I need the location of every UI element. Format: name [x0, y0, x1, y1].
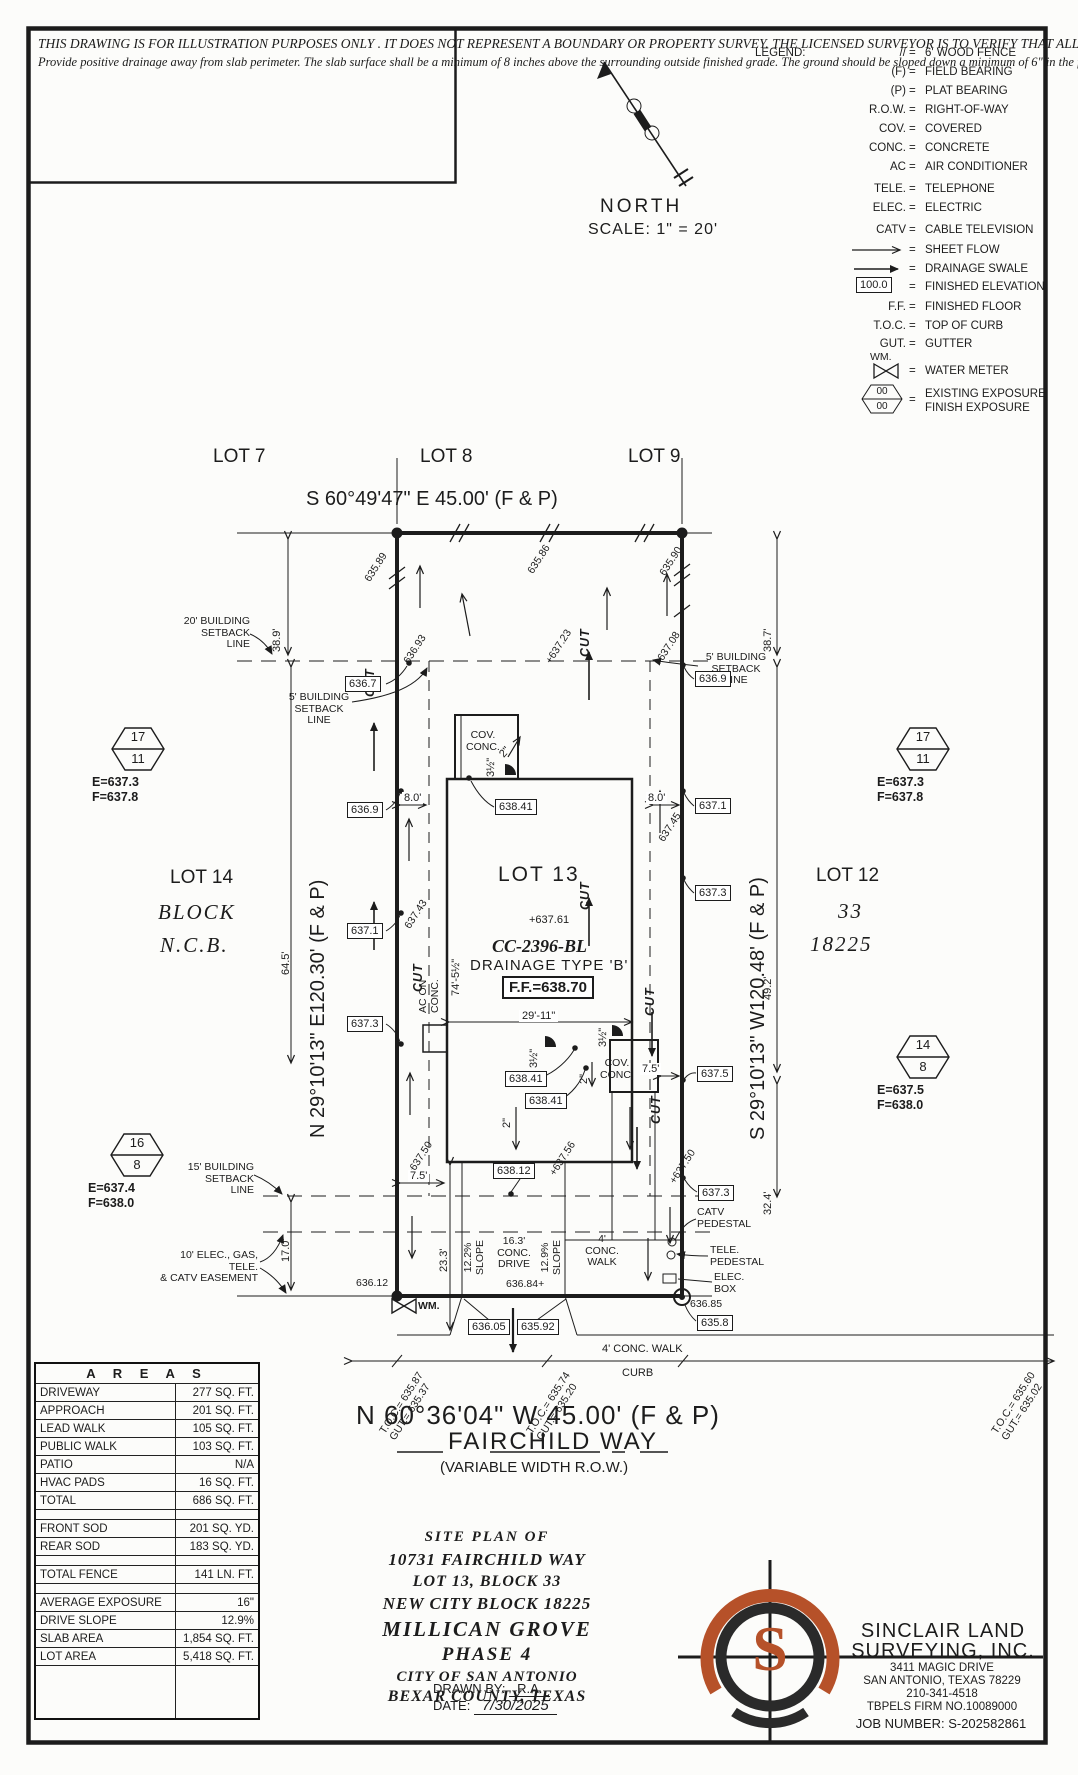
areas-label: HVAC PADS: [35, 1474, 176, 1492]
street-row-note: (VARIABLE WIDTH R.O.W.): [440, 1460, 628, 1476]
legend-sym: (P): [812, 85, 906, 97]
firm-name-2: SURVEYING, INC.: [843, 1640, 1043, 1662]
legend-eq: =: [909, 85, 916, 97]
areas-table: A R E A S DRIVEWAY277 SQ. FT. APPROACH20…: [34, 1362, 260, 1720]
legend-eq: =: [909, 394, 916, 406]
easement-label: 10' ELEC., GAS, TELE. & CATV EASEMENT: [150, 1250, 258, 1285]
lot-9-label: LOT 9: [628, 447, 680, 467]
elev-box: 637.3: [347, 1016, 383, 1032]
catv-pedestal-icon: [668, 1238, 676, 1246]
exposure-bottom: 8: [119, 1158, 155, 1172]
areas-value: 1,854 SQ. FT.: [176, 1630, 260, 1648]
areas-value: 201 SQ. FT.: [176, 1402, 260, 1420]
cut-label: CUT: [643, 987, 657, 1016]
areas-value: 5,418 SQ. FT.: [176, 1648, 260, 1666]
firm-address-2: SAN ANTONIO, TEXAS 78229: [840, 1675, 1044, 1688]
lot-7-label: LOT 7: [213, 447, 265, 467]
lot-12-label: LOT 12: [816, 866, 879, 886]
elev-box: 637.1: [347, 923, 383, 939]
areas-value: 105 SQ. FT.: [176, 1420, 260, 1438]
legend-desc: CONCRETE: [925, 142, 990, 154]
catv-pedestal-label: CATV PEDESTAL: [697, 1207, 751, 1230]
title-line: 10731 FAIRCHILD WAY: [337, 1550, 637, 1570]
legend-desc: COVERED: [925, 123, 982, 135]
elev-box: 636.9: [695, 671, 731, 687]
setback-15-label: 15' BUILDING SETBACK LINE: [182, 1162, 254, 1197]
legend-eq: =: [909, 281, 916, 293]
bearing-north-line: S 60°49'47" E 45.00' (F & P): [306, 488, 558, 510]
areas-value: 141 LN. FT.: [176, 1566, 260, 1584]
areas-value: [176, 1584, 260, 1594]
legend-eq: =: [909, 244, 916, 256]
cut-label: CUT: [578, 881, 592, 910]
tele-pedestal-label: TELE. PEDESTAL: [710, 1245, 764, 1268]
logo-letter: S: [742, 1617, 798, 1681]
exposure-e: E=637.3: [92, 775, 139, 789]
areas-value: 16": [176, 1594, 260, 1612]
cov-conc-top-label: COV. CONC.: [466, 730, 500, 753]
spot-elev: 636.84+: [506, 1279, 544, 1291]
legend-desc: FINISH EXPOSURE: [925, 402, 1030, 414]
legend-eq: =: [909, 183, 916, 195]
site-plan-sheet: THIS DRAWING IS FOR ILLUSTRATION PURPOSE…: [0, 0, 1078, 1775]
areas-title: A R E A S: [35, 1363, 259, 1384]
firm-address-1: 3411 MAGIC DRIVE: [840, 1662, 1044, 1675]
exposure-bottom: 8: [905, 1060, 941, 1074]
drawn-by-value: R.A.: [509, 1681, 550, 1697]
areas-label: [35, 1584, 176, 1594]
dim-8-0-left: 8.0': [402, 792, 423, 804]
legend-desc: EXISTING EXPOSURE: [925, 388, 1046, 400]
north-arrow-icon: [597, 62, 693, 186]
bearing-east-line: S 29°10'13" W120.48' (F & P): [747, 877, 769, 1140]
legend-desc: FINISHED FLOOR: [925, 301, 1021, 313]
legend-desc: ELECTRIC: [925, 202, 982, 214]
dim-64-5: 64.5': [280, 951, 292, 975]
dim-2in: 2": [501, 1118, 513, 1128]
dim-38-7: 38.7': [762, 628, 774, 652]
elev-box: 635.92: [517, 1319, 559, 1335]
legend-sym: (F): [812, 66, 906, 78]
legend-eq: =: [909, 142, 916, 154]
elev-box: 637.3: [695, 885, 731, 901]
legend-eq: =: [909, 338, 916, 350]
exposure-top: 14: [905, 1038, 941, 1052]
elev-box: 637.1: [695, 798, 731, 814]
areas-label: [35, 1556, 176, 1566]
wm-label: WM.: [418, 1301, 440, 1313]
drawn-by-label: DRAWN BY:: [433, 1681, 505, 1696]
exposure-top: 17: [905, 730, 941, 744]
tele-pedestal-icon: [667, 1251, 675, 1259]
elev-box: 636.05: [468, 1319, 510, 1335]
areas-label: [35, 1666, 176, 1720]
exposure-f: F=638.0: [88, 1196, 134, 1210]
title-line: NEW CITY BLOCK 18225: [337, 1594, 637, 1614]
scale-label: SCALE: 1" = 20': [588, 221, 718, 238]
ncb-18225-label: 18225: [810, 933, 873, 955]
legend-sym: TELE.: [812, 183, 906, 195]
ncb-label: N.C.B.: [160, 934, 229, 956]
date-row: DATE: 7/30/2025: [433, 1699, 557, 1713]
legend-desc: WATER METER: [925, 365, 1009, 377]
legend-desc: PLAT BEARING: [925, 85, 1008, 97]
areas-label: LOT AREA: [35, 1648, 176, 1666]
elev-box: 637.5: [697, 1066, 733, 1082]
areas-value: [176, 1666, 260, 1720]
spot-elev: 636.85: [690, 1299, 722, 1311]
spot-elev: 636.12: [356, 1278, 388, 1290]
legend-eq: =: [909, 320, 916, 332]
conc-walk-plan-label: 4' CONC. WALK: [580, 1234, 624, 1269]
dim-3half: 3½": [485, 758, 497, 777]
elev-box: 637.3: [698, 1185, 734, 1201]
house-cc-number: CC-2396-BL: [492, 936, 587, 957]
exposure-e: E=637.4: [88, 1181, 135, 1195]
dim-38-9: 38.9': [271, 628, 283, 652]
areas-value: 183 SQ. YD.: [176, 1538, 260, 1556]
lot-14-label: LOT 14: [170, 868, 233, 888]
exposure-bottom: 11: [905, 752, 941, 766]
water-meter-icon: [392, 1299, 416, 1313]
block-33-label: 33: [838, 900, 863, 922]
title-line: PHASE 4: [337, 1644, 637, 1666]
elev-box: 636.7: [345, 676, 381, 692]
areas-value: 103 SQ. FT.: [176, 1438, 260, 1456]
firm-name-1: SINCLAIR LAND: [843, 1620, 1043, 1642]
legend-desc: CABLE TELEVISION: [925, 224, 1033, 236]
setback-5-left-label: 5' BUILDING SETBACK LINE: [283, 692, 355, 727]
legend-eq: =: [909, 161, 916, 173]
exposure-f: F=637.8: [877, 790, 923, 804]
exposure-top: 17: [120, 730, 156, 744]
bearing-south-line: N 60°36'04" W 45.00' (F & P): [356, 1402, 720, 1429]
date-label: DATE:: [433, 1698, 470, 1713]
exposure-e: E=637.3: [877, 775, 924, 789]
north-label: NORTH: [600, 197, 682, 217]
legend-desc: GUTTER: [925, 338, 972, 350]
dim-3half: 3½": [597, 1028, 609, 1047]
legend-eq: =: [909, 301, 916, 313]
firm-phone: 210-341-4518: [840, 1688, 1044, 1701]
areas-label: PATIO: [35, 1456, 176, 1474]
slope-right-label: 12.9% SLOPE: [540, 1240, 563, 1275]
drawn-by-row: DRAWN BY: R.A.: [433, 1682, 550, 1696]
exposure-bottom: 11: [120, 752, 156, 766]
legend-sym: AC: [812, 161, 906, 173]
legend-title: LEGEND:: [755, 47, 806, 60]
elev-box: 638.12: [493, 1163, 535, 1179]
areas-label: TOTAL FENCE: [35, 1566, 176, 1584]
elev-box: 636.9: [347, 802, 383, 818]
legend-eq: =: [909, 224, 916, 236]
legend-desc: TELEPHONE: [925, 183, 995, 195]
legend-exposure-top: 00: [868, 386, 896, 397]
title-line: SITE PLAN OF: [337, 1529, 637, 1546]
areas-label: PUBLIC WALK: [35, 1438, 176, 1456]
areas-value: N/A: [176, 1456, 260, 1474]
areas-label: SLAB AREA: [35, 1630, 176, 1648]
curb-label: CURB: [622, 1367, 653, 1379]
legend-sym: F.F.: [812, 301, 906, 313]
conc-drive-label: 16.3' CONC. DRIVE: [492, 1236, 536, 1271]
dim-8-0-right: 8.0': [646, 792, 667, 804]
cut-label: CUT: [578, 628, 592, 657]
block-label: BLOCK: [158, 901, 236, 923]
legend-desc: FINISHED ELEVATION: [925, 281, 1045, 293]
drainage-type-label: DRAINAGE TYPE 'B': [470, 958, 628, 974]
elec-box-icon: [663, 1274, 676, 1283]
legend-sym: //: [812, 47, 906, 59]
setback-20-label: 20' BUILDING SETBACK LINE: [178, 616, 250, 651]
dim-17-0: 17.0': [280, 1238, 292, 1262]
legend-desc: RIGHT-OF-WAY: [925, 104, 1009, 116]
drainage-note: Provide positive drainage away from slab…: [38, 55, 442, 70]
legend-eq: =: [909, 66, 916, 78]
areas-value: 686 SQ. FT.: [176, 1492, 260, 1510]
dim-2in: 2": [578, 1074, 590, 1084]
exposure-top: 16: [119, 1136, 155, 1150]
dim-74-5: 74'-5½": [450, 959, 462, 996]
date-value: 7/30/2025: [474, 1697, 557, 1715]
disclaimer-caps: THIS DRAWING IS FOR ILLUSTRATION PURPOSE…: [38, 36, 442, 52]
elev-box: 635.8: [697, 1315, 733, 1331]
street-name: FAIRCHILD WAY: [448, 1429, 658, 1454]
title-line: MILLICAN GROVE: [337, 1617, 637, 1642]
areas-label: FRONT SOD: [35, 1520, 176, 1538]
legend-sym: COV.: [812, 123, 906, 135]
finished-floor-value: F.F.=638.70: [502, 976, 594, 999]
cut-label: CUT: [649, 1095, 663, 1124]
areas-value: 277 SQ. FT.: [176, 1384, 260, 1402]
legend-desc: TOP OF CURB: [925, 320, 1003, 332]
exposure-e: E=637.5: [877, 1083, 924, 1097]
legend-eq: =: [909, 365, 916, 377]
dim-32-4: 32.4': [762, 1191, 774, 1215]
legend-finished-elevation-sym: 100.0: [856, 277, 892, 293]
legend-eq: =: [909, 47, 916, 59]
areas-value: [176, 1556, 260, 1566]
legend-exposure-bottom: 00: [868, 401, 896, 412]
areas-value: 12.9%: [176, 1612, 260, 1630]
bearing-west-line: N 29°10'13" E120.30' (F & P): [307, 880, 329, 1138]
dim-3half: 3½": [528, 1049, 540, 1068]
house-spot-elev: +637.61: [529, 914, 569, 926]
lot-8-label: LOT 8: [420, 447, 472, 467]
dim-29-11: 29'-11": [519, 1010, 558, 1022]
elev-box: 638.41: [505, 1071, 547, 1087]
legend-desc: FIELD BEARING: [925, 66, 1013, 78]
legend-desc: SHEET FLOW: [925, 244, 1000, 256]
areas-label: AVERAGE EXPOSURE: [35, 1594, 176, 1612]
areas-label: REAR SOD: [35, 1538, 176, 1556]
firm-job-number: JOB NUMBER: S-202582861: [836, 1717, 1046, 1731]
legend-desc: AIR CONDITIONER: [925, 161, 1028, 173]
areas-label: DRIVE SLOPE: [35, 1612, 176, 1630]
areas-value: [176, 1510, 260, 1520]
dim-23-3: 23.3': [438, 1248, 450, 1272]
areas-value: 201 SQ. YD.: [176, 1520, 260, 1538]
dim-7-5-left: 7.5': [408, 1170, 429, 1182]
areas-label: APPROACH: [35, 1402, 176, 1420]
areas-value: 16 SQ. FT.: [176, 1474, 260, 1492]
legend-sym: CONC.: [812, 142, 906, 154]
legend-eq: =: [909, 104, 916, 116]
areas-label: TOTAL: [35, 1492, 176, 1510]
exposure-f: F=638.0: [877, 1098, 923, 1112]
title-block: SITE PLAN OF 10731 FAIRCHILD WAY LOT 13,…: [337, 1529, 637, 1706]
legend-sym: ELEC.: [812, 202, 906, 214]
areas-label: DRIVEWAY: [35, 1384, 176, 1402]
firm-tbpels: TBPELS FIRM NO.10089000: [840, 1701, 1044, 1714]
title-line: LOT 13, BLOCK 33: [337, 1573, 637, 1591]
legend-sym: GUT.: [812, 338, 906, 350]
cov-conc-right-label: COV. CONC.: [600, 1058, 634, 1081]
legend-eq: =: [909, 263, 916, 275]
conc-walk-street-label: 4' CONC. WALK: [602, 1343, 683, 1355]
legend-wm-sym: WM.: [870, 352, 892, 364]
legend-eq: =: [909, 202, 916, 214]
areas-label: LEAD WALK: [35, 1420, 176, 1438]
legend-sym: T.O.C.: [812, 320, 906, 332]
legend-sym: CATV: [812, 224, 906, 236]
areas-label: [35, 1510, 176, 1520]
dim-7-5-right: 7.5': [640, 1063, 661, 1075]
legend-eq: =: [909, 123, 916, 135]
exposure-f: F=637.8: [92, 790, 138, 804]
legend-sym: R.O.W.: [812, 104, 906, 116]
elec-box-label: ELEC. BOX: [714, 1272, 744, 1295]
legend-desc: 6' WOOD FENCE: [925, 47, 1016, 59]
legend-desc: DRAINAGE SWALE: [925, 263, 1028, 275]
cut-label: CUT: [411, 963, 425, 992]
slope-left-label: 12.2% SLOPE: [463, 1240, 486, 1275]
dim-49-2: 49.2': [762, 976, 774, 1000]
lot-13-label: LOT 13: [498, 864, 580, 886]
elev-box: 638.41: [495, 799, 537, 815]
elev-box: 638.41: [525, 1093, 567, 1109]
disclaimer-block: THIS DRAWING IS FOR ILLUSTRATION PURPOSE…: [38, 36, 442, 69]
